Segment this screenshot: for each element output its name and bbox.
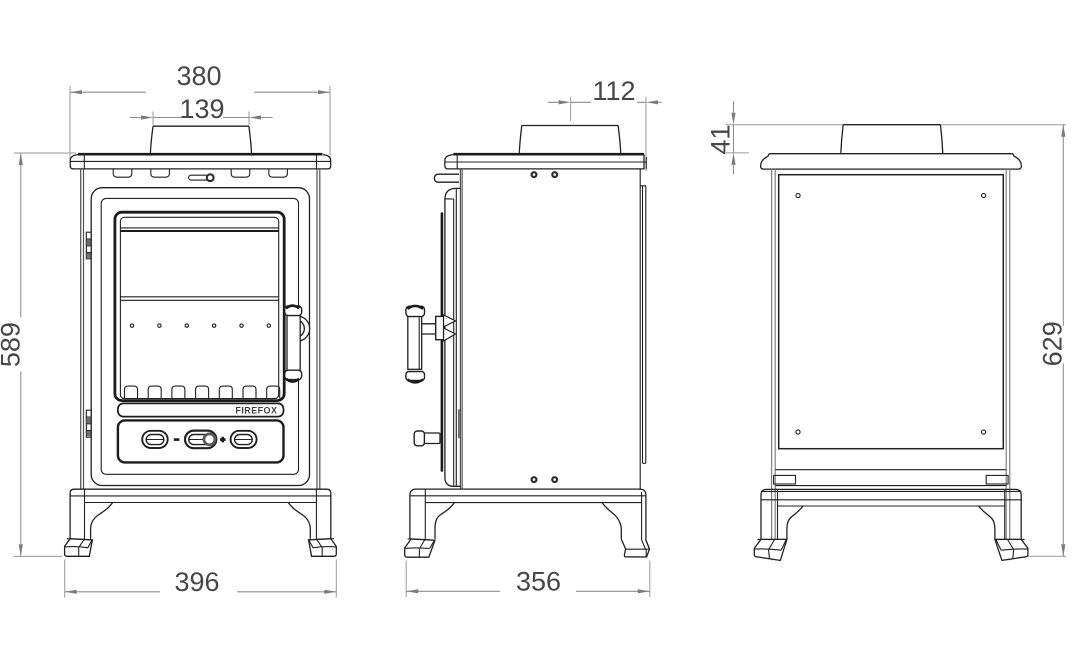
svg-text:41: 41 (706, 125, 736, 155)
svg-text:589: 589 (0, 322, 25, 367)
svg-text:380: 380 (176, 61, 221, 91)
svg-text:112: 112 (592, 76, 635, 106)
svg-text:139: 139 (179, 94, 224, 124)
svg-text:396: 396 (174, 567, 219, 597)
svg-text:FIREFOX: FIREFOX (235, 406, 277, 416)
svg-text:356: 356 (516, 567, 561, 597)
svg-text:629: 629 (1037, 321, 1067, 366)
